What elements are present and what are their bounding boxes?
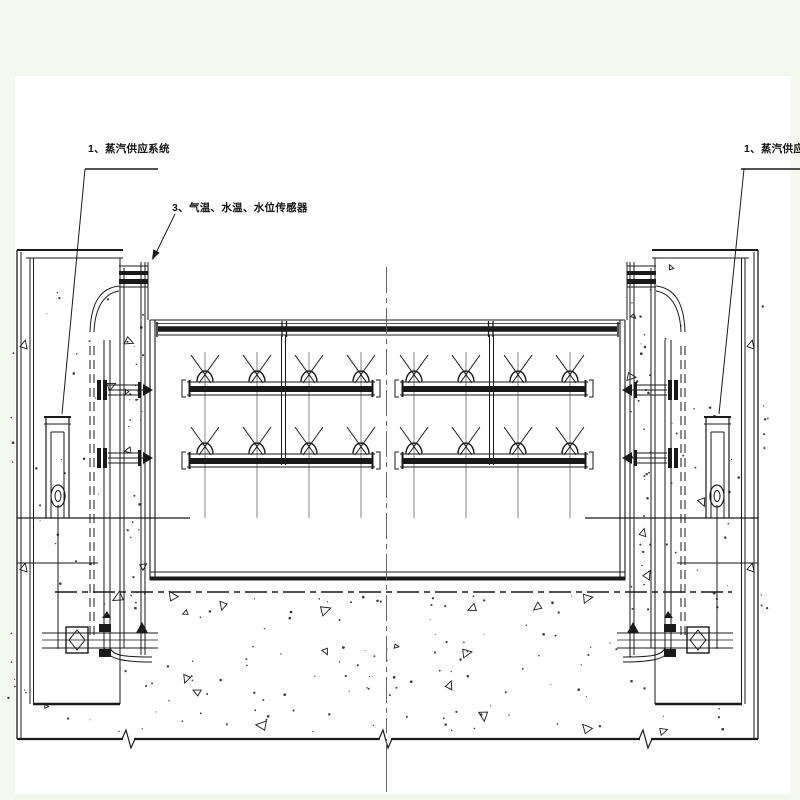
- drawing-page: 1、蒸汽供应系统 3、气温、水温、水位传感器 1、蒸汽供应系统: [0, 0, 800, 800]
- label-steam-supply-left: 1、蒸汽供应系统: [88, 142, 170, 155]
- drawing-paper: [15, 76, 791, 794]
- engineering-drawing: 1、蒸汽供应系统 3、气温、水温、水位传感器 1、蒸汽供应系统: [0, 0, 800, 800]
- label-sensors: 3、气温、水温、水位传感器: [172, 201, 308, 214]
- label-steam-supply-right: 1、蒸汽供应系统: [744, 142, 800, 155]
